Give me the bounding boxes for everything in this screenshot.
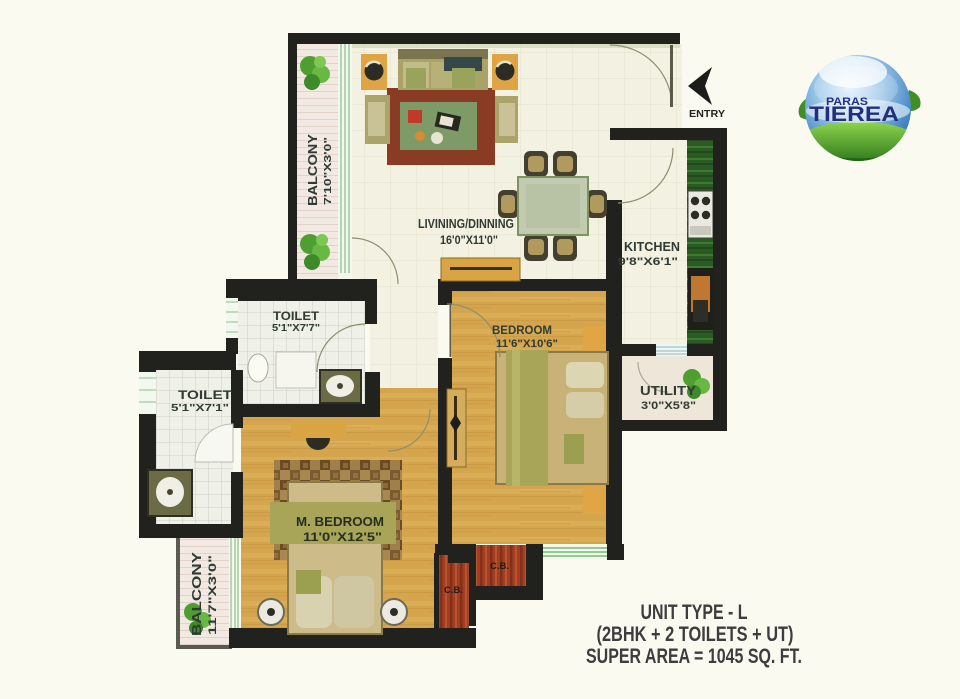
svg-text:16'0"X11'0": 16'0"X11'0" bbox=[440, 233, 498, 247]
svg-text:UTILITY: UTILITY bbox=[640, 384, 697, 398]
svg-text:BEDROOM: BEDROOM bbox=[492, 323, 552, 337]
svg-text:5'1"X7'7": 5'1"X7'7" bbox=[272, 323, 320, 334]
svg-text:C.B.: C.B. bbox=[490, 561, 509, 572]
svg-text:11'7"X3'0": 11'7"X3'0" bbox=[207, 555, 219, 635]
svg-text:M. BEDROOM: M. BEDROOM bbox=[296, 514, 384, 529]
svg-text:C.B.: C.B. bbox=[444, 585, 463, 596]
svg-text:BALCONY: BALCONY bbox=[189, 552, 204, 636]
svg-text:11'6"X10'6": 11'6"X10'6" bbox=[496, 338, 558, 350]
svg-text:7'10"X3'0": 7'10"X3'0" bbox=[322, 137, 334, 205]
svg-text:SUPER AREA = 1045 SQ. FT.: SUPER AREA = 1045 SQ. FT. bbox=[586, 645, 802, 668]
svg-text:LIVINING/DINNING: LIVINING/DINNING bbox=[418, 216, 514, 231]
svg-text:TIEREA: TIEREA bbox=[809, 103, 899, 126]
svg-text:11'0"X12'5": 11'0"X12'5" bbox=[303, 530, 382, 544]
svg-text:UNIT TYPE - L: UNIT TYPE - L bbox=[641, 601, 748, 624]
svg-text:KITCHEN: KITCHEN bbox=[624, 240, 680, 254]
svg-text:3'0"X5'8": 3'0"X5'8" bbox=[641, 400, 696, 412]
svg-text:ENTRY: ENTRY bbox=[689, 108, 725, 120]
svg-text:BALCONY: BALCONY bbox=[306, 133, 320, 206]
svg-text:TOILET: TOILET bbox=[273, 311, 319, 323]
svg-text:5'1"X7'1": 5'1"X7'1" bbox=[171, 402, 229, 414]
svg-text:(2BHK + 2 TOILETS + UT): (2BHK + 2 TOILETS + UT) bbox=[597, 623, 794, 646]
svg-text:TOILET: TOILET bbox=[178, 388, 233, 402]
svg-text:9'8"X6'1": 9'8"X6'1" bbox=[618, 256, 678, 268]
